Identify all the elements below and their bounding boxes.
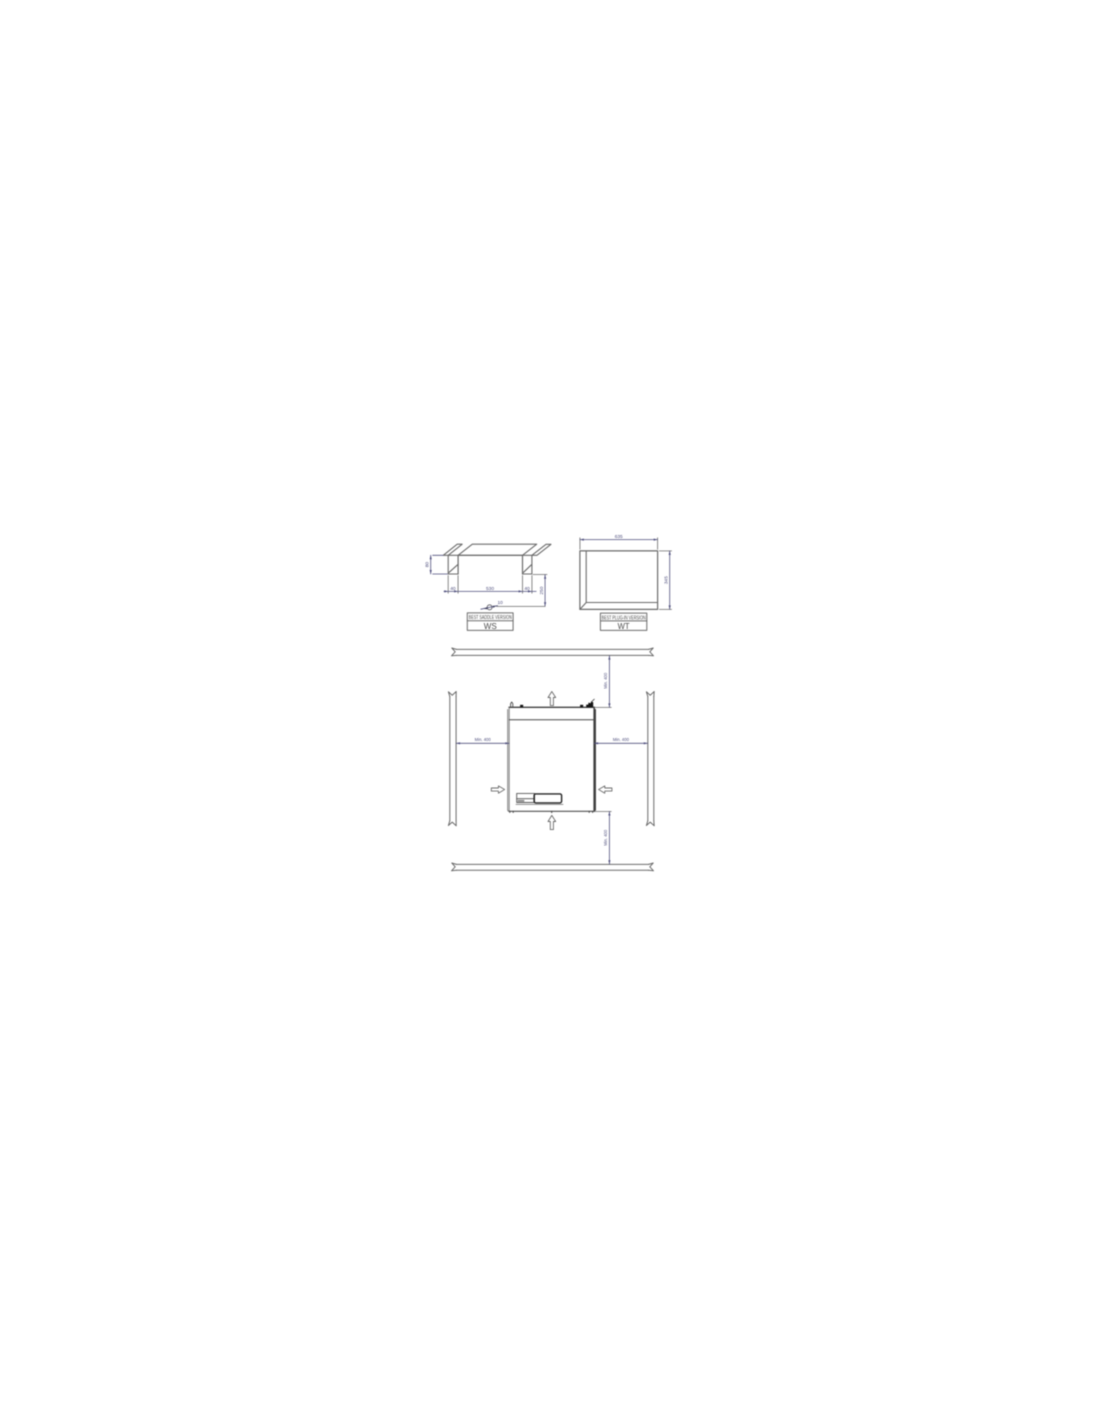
svg-text:635: 635 [615, 534, 623, 540]
svg-text:40: 40 [524, 586, 530, 592]
svg-text:80: 80 [425, 562, 431, 568]
svg-text:345: 345 [664, 576, 670, 584]
svg-text:Min. 400: Min. 400 [475, 737, 492, 742]
svg-text:40: 40 [450, 586, 456, 592]
svg-text:Min. 400: Min. 400 [603, 672, 608, 689]
svg-text:530: 530 [486, 586, 494, 592]
svg-text:WS: WS [484, 621, 497, 631]
svg-text:250: 250 [539, 586, 545, 594]
svg-text:Min. 400: Min. 400 [603, 829, 608, 846]
svg-text:Min. 400: Min. 400 [613, 737, 630, 742]
svg-text:WT: WT [618, 621, 631, 631]
svg-text:10: 10 [498, 600, 504, 606]
